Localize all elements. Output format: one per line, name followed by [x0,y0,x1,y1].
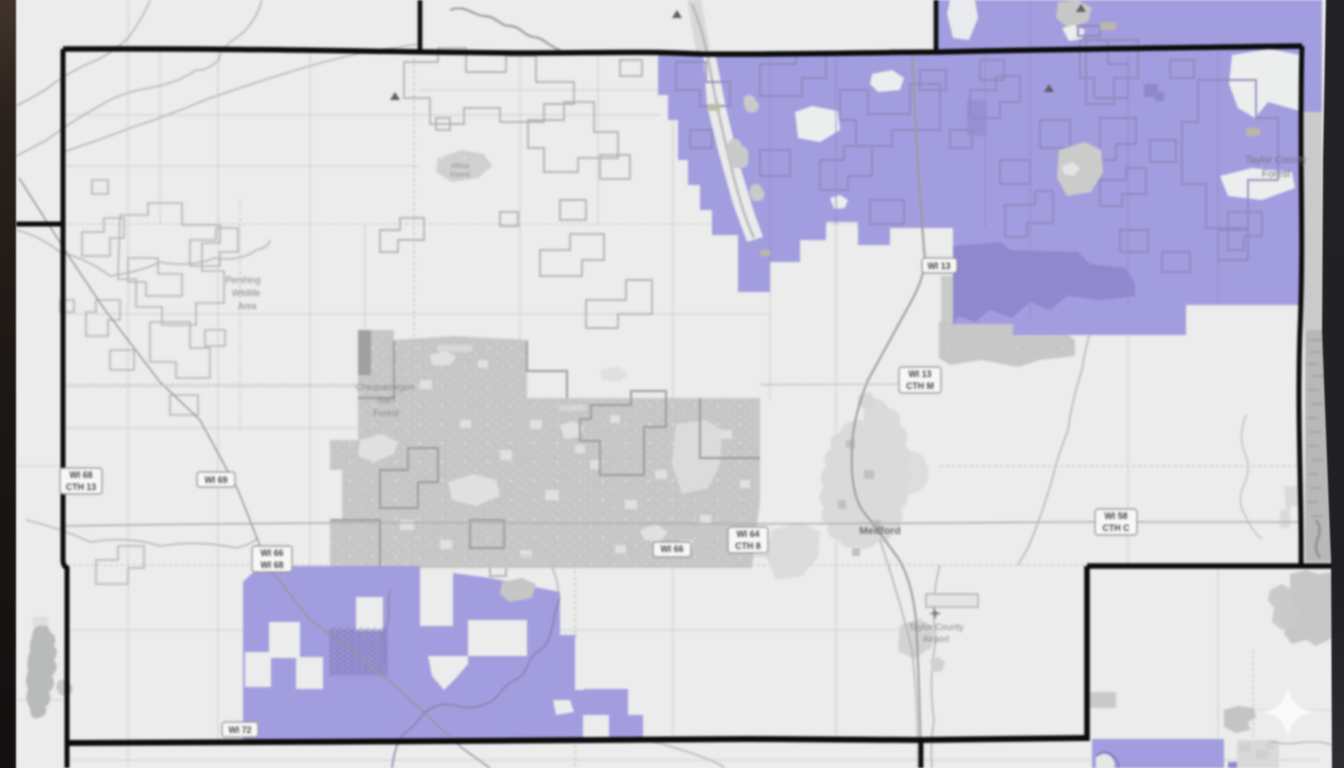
svg-text:Nat'l: Nat'l [377,395,395,405]
svg-text:Forest: Forest [450,172,470,179]
svg-text:WI 58: WI 58 [1105,511,1128,521]
svg-text:WI 66: WI 66 [261,548,284,558]
svg-text:CTH 8: CTH 8 [735,541,761,551]
svg-text:CTH 13: CTH 13 [66,482,96,492]
svg-text:WI 69: WI 69 [205,475,228,485]
svg-text:WI 13: WI 13 [909,369,932,379]
svg-text:WI 13: WI 13 [928,261,951,271]
svg-text:WI 72: WI 72 [229,725,252,735]
svg-text:Medford: Medford [859,525,900,537]
svg-text:Pershing: Pershing [226,275,261,285]
svg-text:Taylor County: Taylor County [1245,155,1306,166]
svg-text:Area: Area [238,301,257,311]
svg-text:CTH C: CTH C [1103,523,1131,533]
svg-text:CTH M: CTH M [906,381,934,391]
svg-text:Taylor County: Taylor County [908,622,964,632]
svg-text:Africa: Africa [451,163,469,170]
svg-text:Forest: Forest [373,408,399,418]
svg-text:Chequamegon: Chequamegon [355,382,414,392]
svg-text:Wildlife: Wildlife [232,288,260,298]
svg-text:Forest: Forest [1262,169,1291,180]
svg-text:WI 64: WI 64 [737,529,760,539]
svg-text:Airport: Airport [923,634,950,644]
svg-text:WI 66: WI 66 [661,544,684,554]
svg-text:WI 68: WI 68 [70,470,93,480]
svg-text:WI 68: WI 68 [261,560,284,570]
